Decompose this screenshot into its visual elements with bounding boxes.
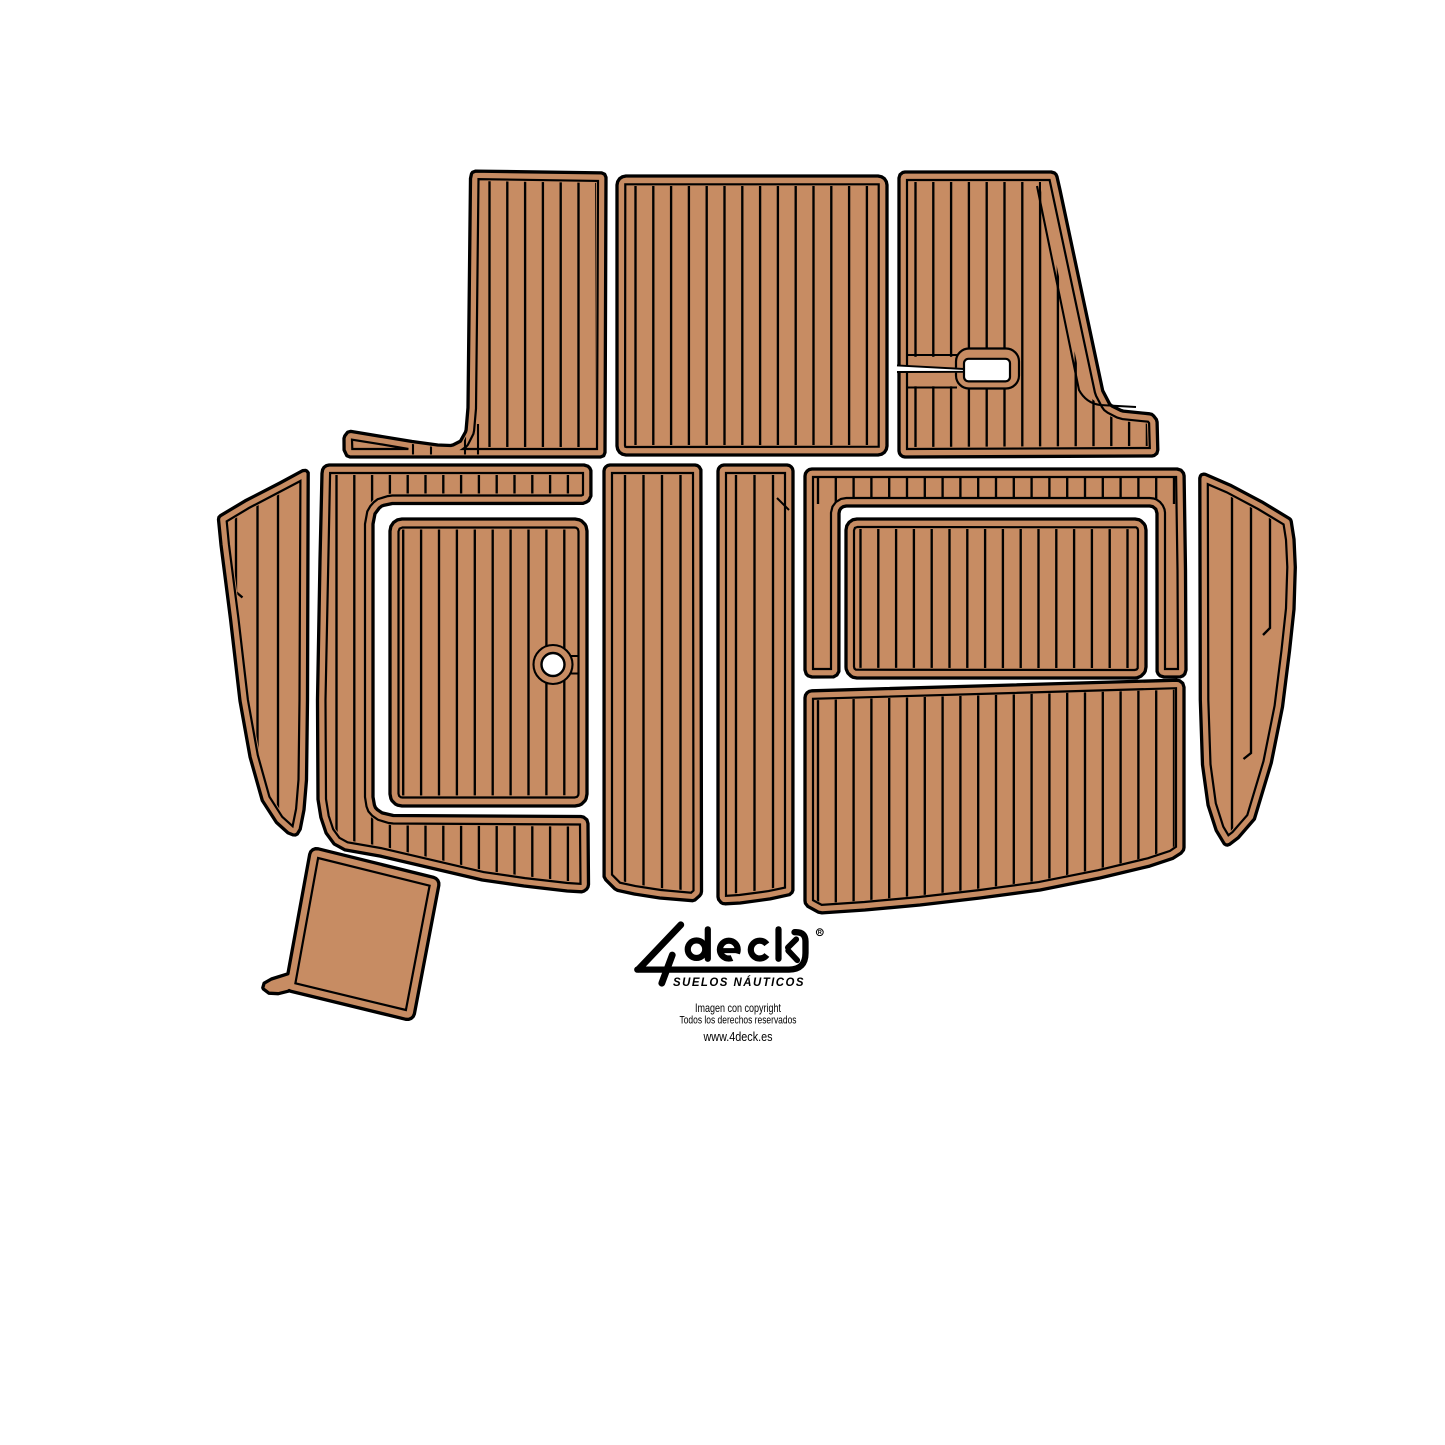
svg-text:www.4deck.es: www.4deck.es	[703, 1029, 773, 1044]
svg-text:R: R	[818, 930, 822, 936]
svg-text:Todos los derechos reservados: Todos los derechos reservados	[680, 1015, 797, 1027]
svg-text:SUELOS NÁUTICOS: SUELOS NÁUTICOS	[673, 976, 805, 989]
svg-text:Imagen con copyright: Imagen con copyright	[695, 1001, 782, 1015]
